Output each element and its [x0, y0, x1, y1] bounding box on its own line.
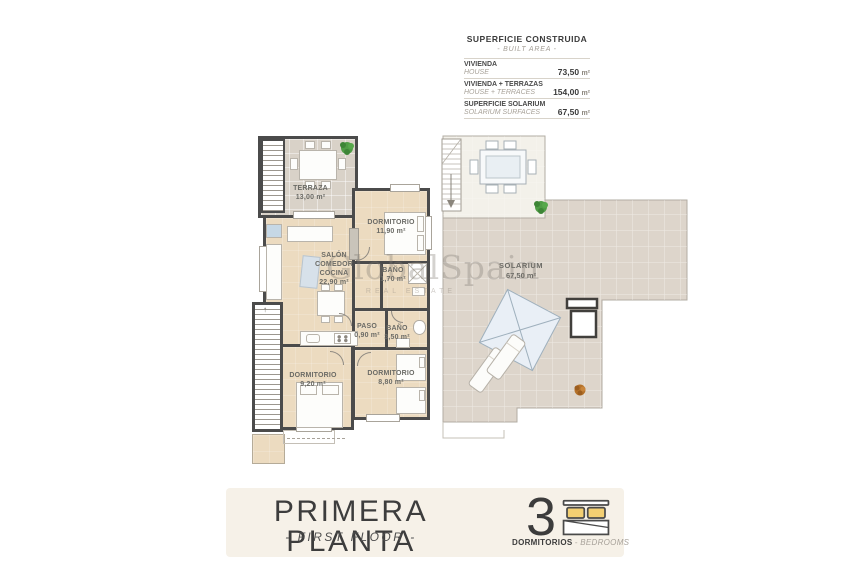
window	[366, 414, 400, 422]
bedrooms-label-es: DORMITORIOS	[512, 538, 573, 547]
legend-row-sublabel: SOLARIUM SURFACES	[464, 109, 545, 117]
chair-icon	[321, 141, 331, 149]
stove-icon	[334, 333, 351, 344]
room-area-solarium: 67,50 m²	[506, 271, 537, 280]
bed-icon	[560, 499, 612, 537]
bedrooms-count: 3	[526, 490, 556, 544]
legend-row-sublabel: HOUSE	[464, 69, 497, 77]
room-label-terraza: TERRAZA 13,00 m²	[283, 184, 338, 202]
room-label-bano: BAÑO 3,50 m²	[378, 324, 416, 342]
legend-row-unit: m²	[581, 90, 590, 97]
legend-row-label: VIVIENDA	[464, 61, 497, 69]
plan-right-solarium: SOLARIUM 67,50 m²	[440, 134, 690, 444]
legend-row-value: 73,50	[558, 67, 579, 77]
legend-row-vivienda: VIVIENDA HOUSE 73,50 m²	[464, 58, 590, 79]
legend-subtitle: - BUILT AREA -	[464, 46, 590, 53]
stairs-icon	[442, 139, 461, 211]
room-label-dormitorio-principal: DORMITORIO 11,90 m²	[362, 218, 420, 236]
sofa-icon	[266, 244, 282, 300]
side-table-icon	[266, 224, 282, 238]
legend-row-label: SUPERFICIE SOLARIUM	[464, 101, 545, 109]
roof-access-box-icon	[567, 299, 597, 337]
step-outline	[443, 422, 504, 438]
bedrooms-label-en: - BEDROOMS	[575, 538, 630, 547]
chair-icon	[321, 316, 330, 323]
legend-row-solarium: SUPERFICIE SOLARIUM SOLARIUM SURFACES 67…	[464, 99, 590, 119]
room-label-dormitorio-2: DORMITORIO 9,20 m²	[284, 371, 342, 389]
exterior-stairs-icon	[261, 139, 285, 213]
projection-dashed-line	[287, 438, 345, 439]
floor-plan-page: SUPERFICIE CONSTRUIDA - BUILT AREA - VIV…	[0, 0, 850, 572]
step-outline	[283, 430, 335, 444]
legend-row-unit: m²	[581, 110, 590, 117]
bedrooms-label: DORMITORIOS - BEDROOMS	[512, 538, 624, 547]
pillow-icon	[417, 235, 424, 251]
plant-icon	[575, 385, 586, 396]
legend-rows: VIVIENDA HOUSE 73,50 m² VIVIENDA + TERRA…	[464, 58, 590, 119]
room-label-dormitorio-3: DORMITORIO 8,80 m²	[362, 369, 420, 387]
legend-row-unit: m²	[581, 70, 590, 77]
legend-row-label: VIVIENDA + TERRAZAS	[464, 81, 543, 89]
chair-icon	[290, 158, 298, 170]
room-label-solarium: SOLARIUM	[499, 261, 543, 270]
chair-icon	[305, 141, 315, 149]
legend-row-sublabel: HOUSE + TERRACES	[464, 89, 543, 97]
stair-arrow-up-icon: ↑	[263, 306, 267, 314]
pillow-icon	[419, 390, 425, 401]
planter-block	[252, 434, 285, 464]
legend-row-vivienda-terrazas: VIVIENDA + TERRAZAS HOUSE + TERRACES 154…	[464, 79, 590, 99]
legend-row-value: 67,50	[558, 107, 579, 117]
pillow-icon	[419, 357, 425, 368]
sofa-icon	[287, 226, 333, 242]
floor-subtitle: - FIRST FLOOR -	[236, 530, 466, 544]
window	[390, 184, 420, 192]
area-legend: SUPERFICIE CONSTRUIDA - BUILT AREA - VIV…	[464, 34, 590, 119]
sink-icon	[412, 287, 425, 296]
legend-row-value: 154,00	[553, 87, 579, 97]
sink-icon	[306, 334, 320, 343]
room-label-bano-pequeno: BAÑO 1,70 m²	[374, 266, 412, 284]
stairwell-icon	[252, 302, 283, 432]
floor-title: PRIMERA PLANTA	[236, 497, 466, 557]
legend-title: SUPERFICIE CONSTRUIDA	[464, 34, 590, 44]
terrace-table-icon	[299, 150, 337, 180]
terrace-sliding-door	[293, 211, 335, 219]
room-label-salon: SALÓN COMEDOR COCINA 22,90 m²	[310, 251, 358, 287]
footer-banner: PRIMERA PLANTA - FIRST FLOOR - 3 DORMITO…	[226, 488, 624, 557]
chair-icon	[338, 158, 346, 170]
plant-icon	[338, 139, 356, 157]
